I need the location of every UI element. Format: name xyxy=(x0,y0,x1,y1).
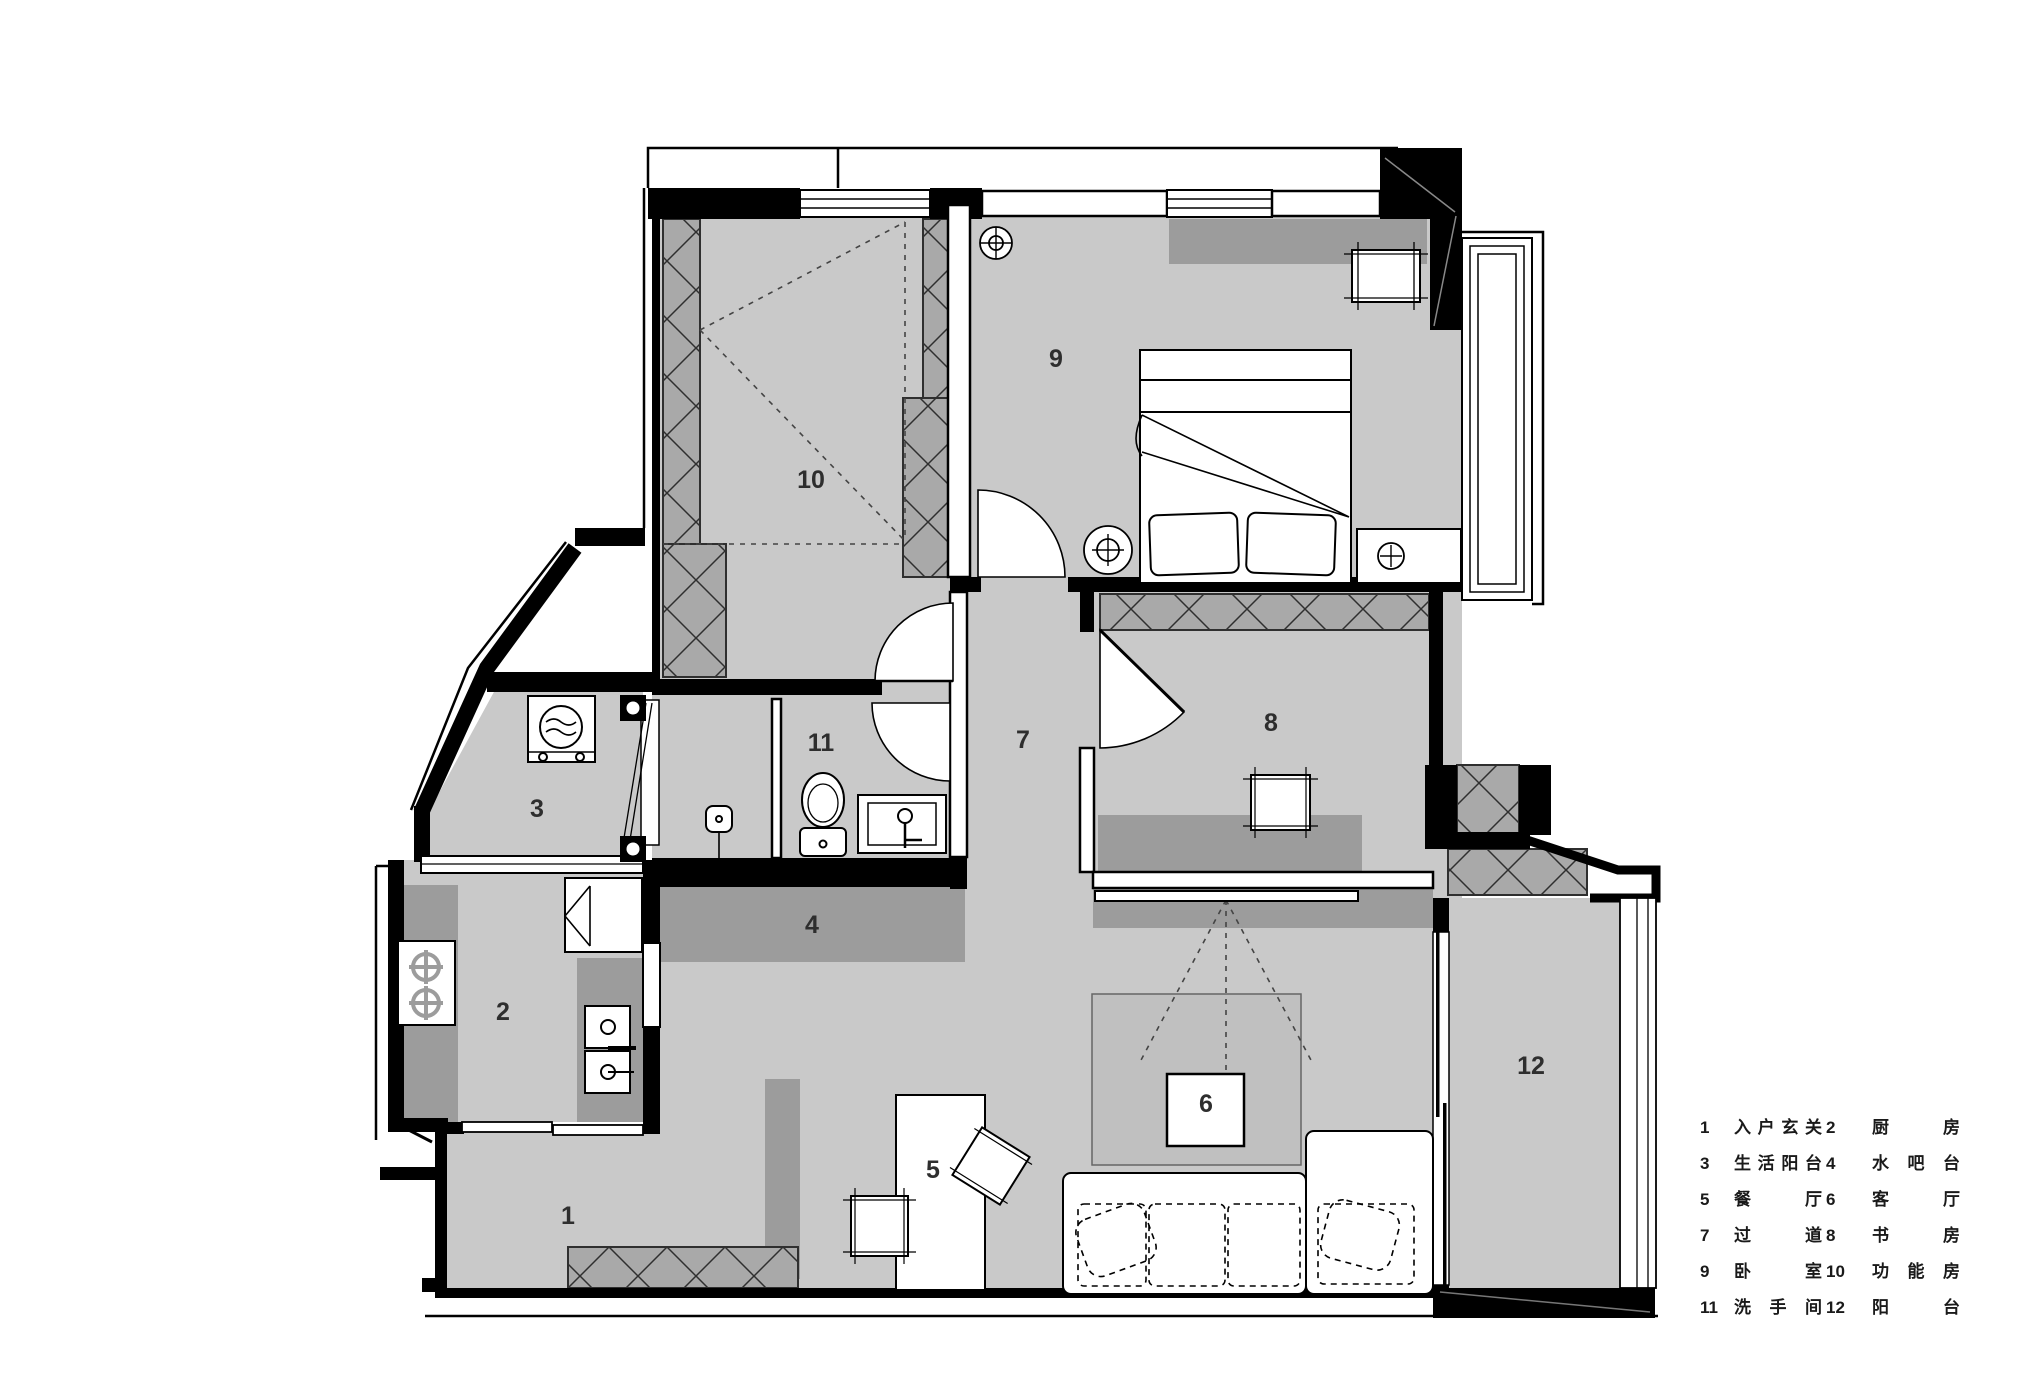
room-label-dining: 5 xyxy=(926,1156,940,1184)
legend-num: 7 xyxy=(1700,1224,1730,1247)
legend-num: 6 xyxy=(1826,1188,1868,1211)
room-label-entry: 1 xyxy=(561,1202,575,1230)
legend-num: 8 xyxy=(1826,1224,1868,1247)
legend-label: 客厅 xyxy=(1872,1188,1960,1211)
room-label-living: 6 xyxy=(1199,1090,1213,1118)
legend-num: 2 xyxy=(1826,1116,1868,1139)
legend-label: 卧室 xyxy=(1734,1260,1822,1283)
nightstand xyxy=(1357,529,1461,583)
bathroom-sink-icon xyxy=(858,795,946,853)
toilet-icon xyxy=(800,773,846,856)
legend-num: 4 xyxy=(1826,1152,1868,1175)
legend-num: 12 xyxy=(1826,1296,1868,1319)
room-label-waterbar: 4 xyxy=(805,911,819,939)
funcroom-wardrobe-left-lower xyxy=(663,544,726,677)
balcony-window xyxy=(1620,898,1656,1288)
pillow xyxy=(1246,512,1336,575)
legend: 1 入户玄关 2 厨房 3 生活阳台 4 水吧台 5 餐厅 6 客厅 7 过道 … xyxy=(1700,1116,1960,1319)
wall-left-lower xyxy=(414,806,430,862)
dining-table xyxy=(896,1095,985,1290)
room-label-study: 8 xyxy=(1264,709,1278,737)
legend-label: 过道 xyxy=(1734,1224,1822,1247)
study-desk xyxy=(1098,815,1362,872)
legend-num: 3 xyxy=(1700,1152,1730,1175)
stove-icon xyxy=(398,941,455,1025)
washing-machine-icon xyxy=(528,696,595,762)
bed xyxy=(1136,350,1351,583)
bedroom-bay-window xyxy=(1462,238,1532,600)
legend-num: 1 xyxy=(1700,1116,1730,1139)
study-cabinet xyxy=(1100,594,1429,630)
room-label-balcony12: 12 xyxy=(1517,1052,1545,1080)
legend-label: 书房 xyxy=(1872,1224,1960,1247)
study-chair xyxy=(1243,767,1318,838)
ceiling-light-icon xyxy=(980,227,1012,259)
tv-screen xyxy=(1095,891,1358,901)
legend-label: 入户玄关 xyxy=(1734,1116,1822,1139)
legend-label: 阳台 xyxy=(1872,1296,1960,1319)
legend-label: 生活阳台 xyxy=(1734,1152,1822,1175)
pillow xyxy=(1149,512,1239,575)
shower-glass xyxy=(772,699,781,858)
legend-num: 11 xyxy=(1700,1296,1730,1319)
floor-lamp-icon xyxy=(1084,526,1132,574)
fridge-icon xyxy=(565,878,642,952)
room-label-kitchen: 2 xyxy=(496,998,510,1026)
room-label-bathroom: 11 xyxy=(808,729,835,757)
column-hatch xyxy=(1457,765,1519,835)
floor-plan-page: 1 2 3 4 5 6 7 8 9 10 11 12 1 入户玄关 2 厨房 3… xyxy=(0,0,2033,1394)
legend-label: 功能房 xyxy=(1872,1260,1960,1283)
window-seat-table xyxy=(1344,242,1428,310)
legend-label: 洗手间 xyxy=(1734,1296,1822,1319)
nightstand-lamp-icon xyxy=(1378,543,1404,569)
floor-balcony12 xyxy=(1448,898,1622,1288)
shoe-cabinet xyxy=(568,1247,798,1288)
dining-chair xyxy=(843,1188,916,1264)
legend-label: 餐厅 xyxy=(1734,1188,1822,1211)
room-label-balcony3: 3 xyxy=(530,795,544,823)
living-balcony-slider xyxy=(1433,932,1449,1285)
legend-label: 水吧台 xyxy=(1872,1152,1960,1175)
room-label-funcroom: 10 xyxy=(797,466,825,494)
room-label-bedroom: 9 xyxy=(1049,345,1063,373)
legend-label: 厨房 xyxy=(1872,1116,1960,1139)
room-label-hallway: 7 xyxy=(1016,726,1030,754)
funcroom-wardrobe-left-upper xyxy=(663,219,700,544)
kitchen-side-door xyxy=(643,943,660,1027)
legend-num: 5 xyxy=(1700,1188,1730,1211)
legend-num: 9 xyxy=(1700,1260,1730,1283)
legend-num: 10 xyxy=(1826,1260,1868,1283)
